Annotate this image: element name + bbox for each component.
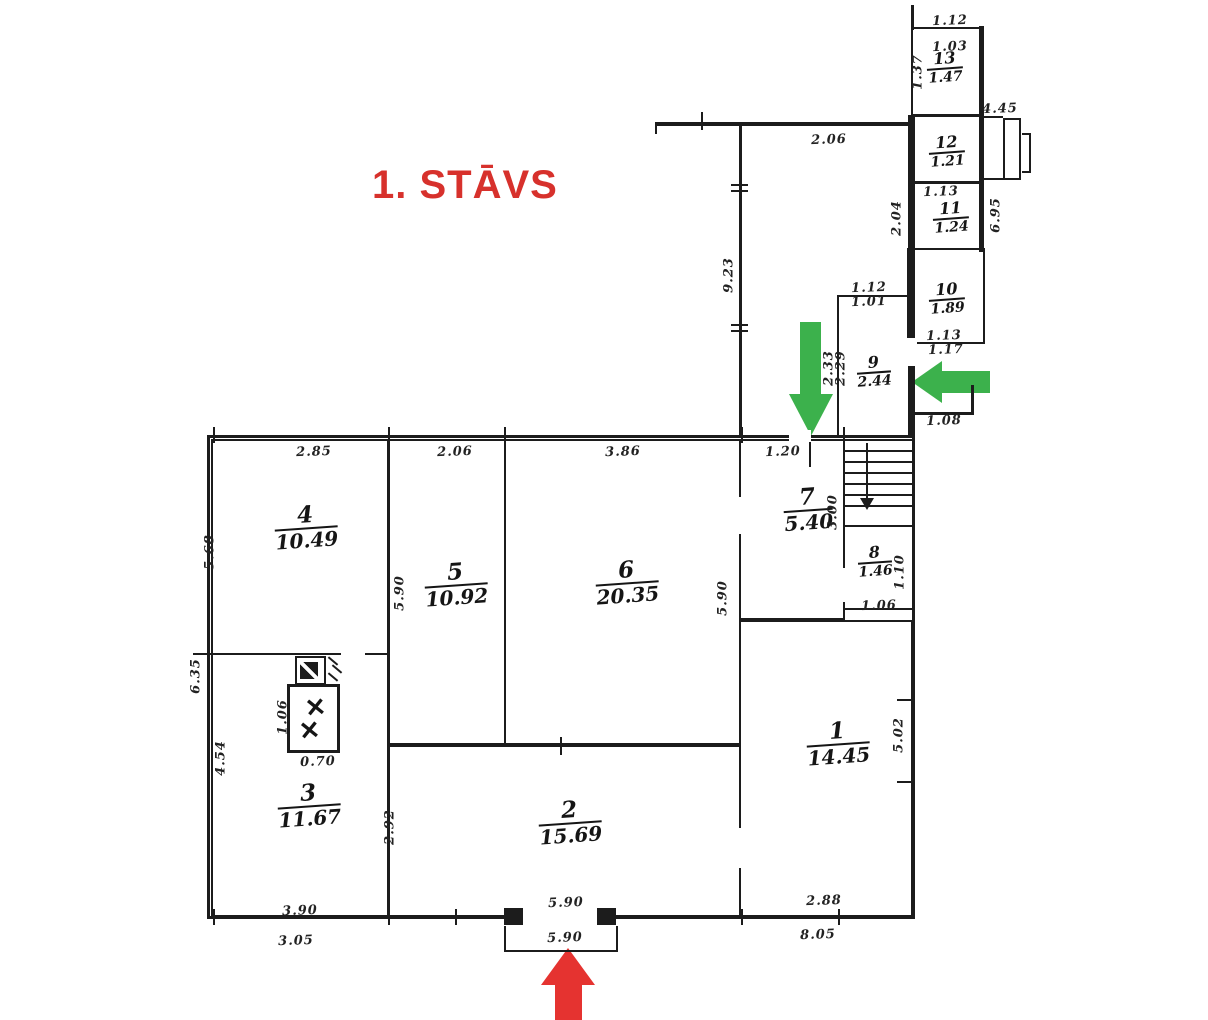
green-arrow-left-icon bbox=[912, 361, 942, 403]
wall-segment bbox=[845, 505, 913, 507]
dimension-tick bbox=[504, 427, 506, 443]
room-area: 1.47 bbox=[927, 68, 964, 87]
room-area: 10.49 bbox=[275, 527, 339, 554]
wall-segment bbox=[845, 472, 913, 474]
dimension-label: 2.04 bbox=[890, 200, 905, 236]
dimension-label: 2.06 bbox=[811, 132, 847, 148]
room-number: 8 bbox=[857, 543, 892, 564]
room-label-8: 81.46 bbox=[857, 543, 893, 580]
dimension-label: 2.88 bbox=[806, 893, 842, 909]
room-label-5: 510.92 bbox=[423, 558, 489, 611]
wall-segment bbox=[866, 443, 868, 498]
room-area: 1.24 bbox=[933, 218, 970, 237]
wall-segment bbox=[504, 926, 506, 952]
dimension-tick bbox=[388, 427, 390, 443]
wall-segment bbox=[731, 324, 748, 326]
door-opening bbox=[523, 908, 598, 927]
dimension-label: 3.05 bbox=[278, 933, 314, 949]
dimension-label: 3.90 bbox=[282, 903, 318, 919]
wall-segment bbox=[979, 26, 984, 252]
green-arrow-left-stem bbox=[940, 371, 990, 393]
green-arrow-down-stem bbox=[800, 322, 821, 396]
room-area: 1.46 bbox=[858, 562, 893, 580]
dimension-label: 1.20 bbox=[765, 444, 801, 460]
room-number: 9 bbox=[856, 353, 891, 374]
door-opening bbox=[789, 430, 811, 442]
room-label-6: 620.35 bbox=[594, 556, 660, 609]
floor-plan: 1. STĀVS ✕ ✕ 114.45215.69311.67410.49510… bbox=[0, 0, 1208, 1020]
room-area: 2.44 bbox=[857, 372, 892, 390]
dimension-label: 4.54 bbox=[214, 740, 229, 776]
dimension-label: 3.86 bbox=[605, 444, 641, 460]
room-label-2: 215.69 bbox=[537, 796, 603, 849]
door-opening bbox=[735, 497, 745, 534]
wall-segment bbox=[845, 494, 913, 496]
wall-segment bbox=[731, 190, 748, 192]
wall-segment bbox=[911, 5, 914, 30]
dimension-label: 5.90 bbox=[716, 580, 731, 616]
dimension-label: 5.68 bbox=[203, 534, 218, 570]
dimension-label: 1.37 bbox=[911, 54, 926, 90]
dimension-tick bbox=[213, 909, 215, 925]
dimension-label: 1.06 bbox=[861, 598, 897, 614]
wall-segment bbox=[845, 461, 913, 463]
red-arrow-up-icon bbox=[541, 948, 595, 985]
wall-segment bbox=[908, 115, 915, 437]
room-number: 10 bbox=[928, 280, 965, 301]
wall-outline bbox=[1003, 118, 1021, 180]
room-label-4: 410.49 bbox=[273, 501, 339, 554]
dimension-label: 6.35 bbox=[189, 658, 204, 694]
wall-segment bbox=[655, 122, 657, 134]
room-label-9: 92.44 bbox=[856, 353, 892, 390]
dimension-label: 3.00 bbox=[826, 494, 841, 530]
dimension-label: 2.92 bbox=[383, 809, 398, 845]
room-label-11: 111.24 bbox=[932, 199, 971, 236]
dimension-label: 1.10 bbox=[893, 554, 908, 590]
room-area: 10.92 bbox=[425, 584, 489, 611]
dimension-label: 1.13 bbox=[923, 184, 959, 200]
room-area: 15.69 bbox=[539, 822, 603, 849]
wall-segment bbox=[739, 126, 742, 437]
door-opening bbox=[734, 828, 746, 868]
wall-segment bbox=[983, 178, 1003, 180]
room-number: 12 bbox=[928, 133, 965, 154]
dimension-label: 2.29 bbox=[834, 350, 849, 386]
dimension-tick bbox=[838, 909, 840, 925]
wall-segment bbox=[731, 330, 748, 332]
wall-segment bbox=[701, 112, 703, 130]
dimension-label: 5.90 bbox=[548, 895, 584, 911]
dimension-label: 9.23 bbox=[722, 257, 737, 293]
room-label-1: 114.45 bbox=[805, 717, 871, 770]
wall-segment bbox=[845, 483, 913, 485]
door-opening bbox=[341, 650, 365, 660]
wall-segment bbox=[971, 385, 974, 415]
dimension-label: 1.12 bbox=[932, 13, 968, 29]
dimension-tick bbox=[560, 737, 562, 755]
dimension-tick bbox=[455, 909, 457, 925]
room-area: 14.45 bbox=[807, 743, 871, 770]
wall-segment bbox=[1022, 171, 1031, 173]
wall-outline bbox=[287, 684, 340, 753]
dimension-label: 6.95 bbox=[989, 197, 1004, 233]
door-opening bbox=[903, 338, 917, 366]
dimension-tick bbox=[213, 427, 215, 443]
dimension-label: 8.05 bbox=[800, 927, 836, 943]
wall-segment bbox=[809, 441, 811, 467]
dimension-label: 1.08 bbox=[926, 413, 962, 429]
door-post bbox=[597, 908, 616, 925]
dimension-label: 5.90 bbox=[547, 930, 583, 946]
door-opening bbox=[839, 568, 849, 602]
wall-segment bbox=[616, 926, 618, 952]
dimension-tick bbox=[741, 909, 743, 925]
room-area: 11.67 bbox=[278, 805, 342, 832]
wall-segment bbox=[193, 653, 213, 655]
room-area: 1.89 bbox=[929, 299, 966, 318]
room-label-3: 311.67 bbox=[276, 779, 342, 832]
room-label-10: 101.89 bbox=[928, 280, 967, 317]
door-post bbox=[504, 908, 523, 925]
dimension-label: 4.45 bbox=[982, 101, 1018, 117]
wall-segment bbox=[1029, 133, 1031, 173]
wall-segment bbox=[897, 781, 915, 783]
dimension-label: 2.85 bbox=[296, 444, 332, 460]
wall-segment bbox=[504, 950, 618, 952]
dimension-label: 5.90 bbox=[393, 575, 408, 611]
dimension-label: 1.17 bbox=[928, 342, 964, 358]
red-arrow-up-stem bbox=[555, 984, 582, 1020]
wall-segment bbox=[897, 699, 915, 701]
dimension-tick bbox=[741, 427, 743, 443]
dimension-label: 2.06 bbox=[437, 444, 473, 460]
dimension-label: 1.01 bbox=[851, 294, 887, 310]
room-label-12: 121.21 bbox=[928, 133, 967, 170]
room-number: 11 bbox=[932, 199, 969, 220]
wall-segment bbox=[655, 122, 915, 126]
stove-door-icon bbox=[300, 662, 318, 679]
dimension-label: 1.06 bbox=[276, 699, 291, 735]
room-area: 1.21 bbox=[929, 152, 966, 171]
dimension-label: 1.03 bbox=[932, 39, 968, 55]
dimension-label: 0.70 bbox=[300, 754, 336, 770]
room-area: 20.35 bbox=[596, 582, 660, 609]
dimension-tick bbox=[388, 909, 390, 925]
dimension-label: 5.02 bbox=[892, 717, 907, 753]
wall-segment bbox=[731, 184, 748, 186]
page-title: 1. STĀVS bbox=[372, 163, 558, 208]
dimension-tick bbox=[843, 427, 845, 443]
wall-segment bbox=[1022, 133, 1031, 135]
wall-segment bbox=[845, 450, 913, 452]
